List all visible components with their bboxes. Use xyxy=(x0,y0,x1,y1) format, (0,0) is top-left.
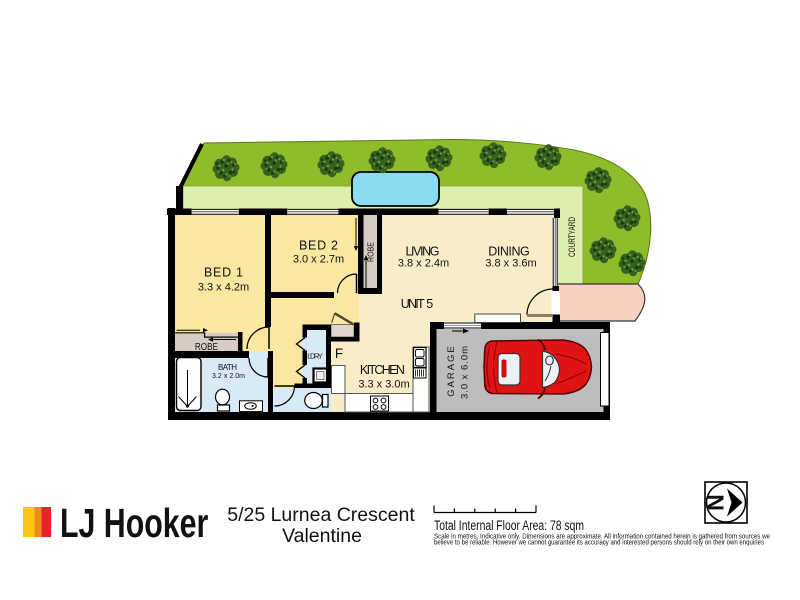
svg-text:LIVING: LIVING xyxy=(406,245,440,259)
svg-text:DINING: DINING xyxy=(488,245,530,259)
svg-text:3.3 x 3.0m: 3.3 x 3.0m xyxy=(358,379,409,391)
svg-text:BED 2: BED 2 xyxy=(299,239,338,253)
svg-text:F: F xyxy=(335,346,343,361)
svg-text:3.2 x 2.0m: 3.2 x 2.0m xyxy=(212,373,245,380)
svg-text:3.0 x 2.7m: 3.0 x 2.7m xyxy=(293,254,344,266)
svg-text:L'DRY: L'DRY xyxy=(307,352,323,361)
svg-text:BED 1: BED 1 xyxy=(204,266,243,280)
svg-text:5/25 Lurnea Crescent: 5/25 Lurnea Crescent xyxy=(227,504,415,526)
svg-text:Valentine: Valentine xyxy=(282,525,362,547)
svg-text:UNIT 5: UNIT 5 xyxy=(401,297,434,311)
svg-text:3.8 x 3.6m: 3.8 x 3.6m xyxy=(485,258,536,270)
svg-text:3.0 x 6.0m: 3.0 x 6.0m xyxy=(460,346,471,399)
svg-text:N: N xyxy=(703,494,729,511)
svg-text:3.8 x 2.4m: 3.8 x 2.4m xyxy=(398,258,449,270)
svg-text:LJ Hooker: LJ Hooker xyxy=(60,499,208,546)
svg-text:COURTYARD: COURTYARD xyxy=(567,217,577,257)
svg-text:believe to be reliable. Howeve: believe to be reliable. However we canno… xyxy=(434,538,764,547)
svg-text:ROBE: ROBE xyxy=(367,242,376,262)
svg-text:3.3 x 4.2m: 3.3 x 4.2m xyxy=(198,282,249,294)
svg-text:BATH: BATH xyxy=(218,363,237,372)
svg-text:KITCHEN: KITCHEN xyxy=(360,363,405,377)
